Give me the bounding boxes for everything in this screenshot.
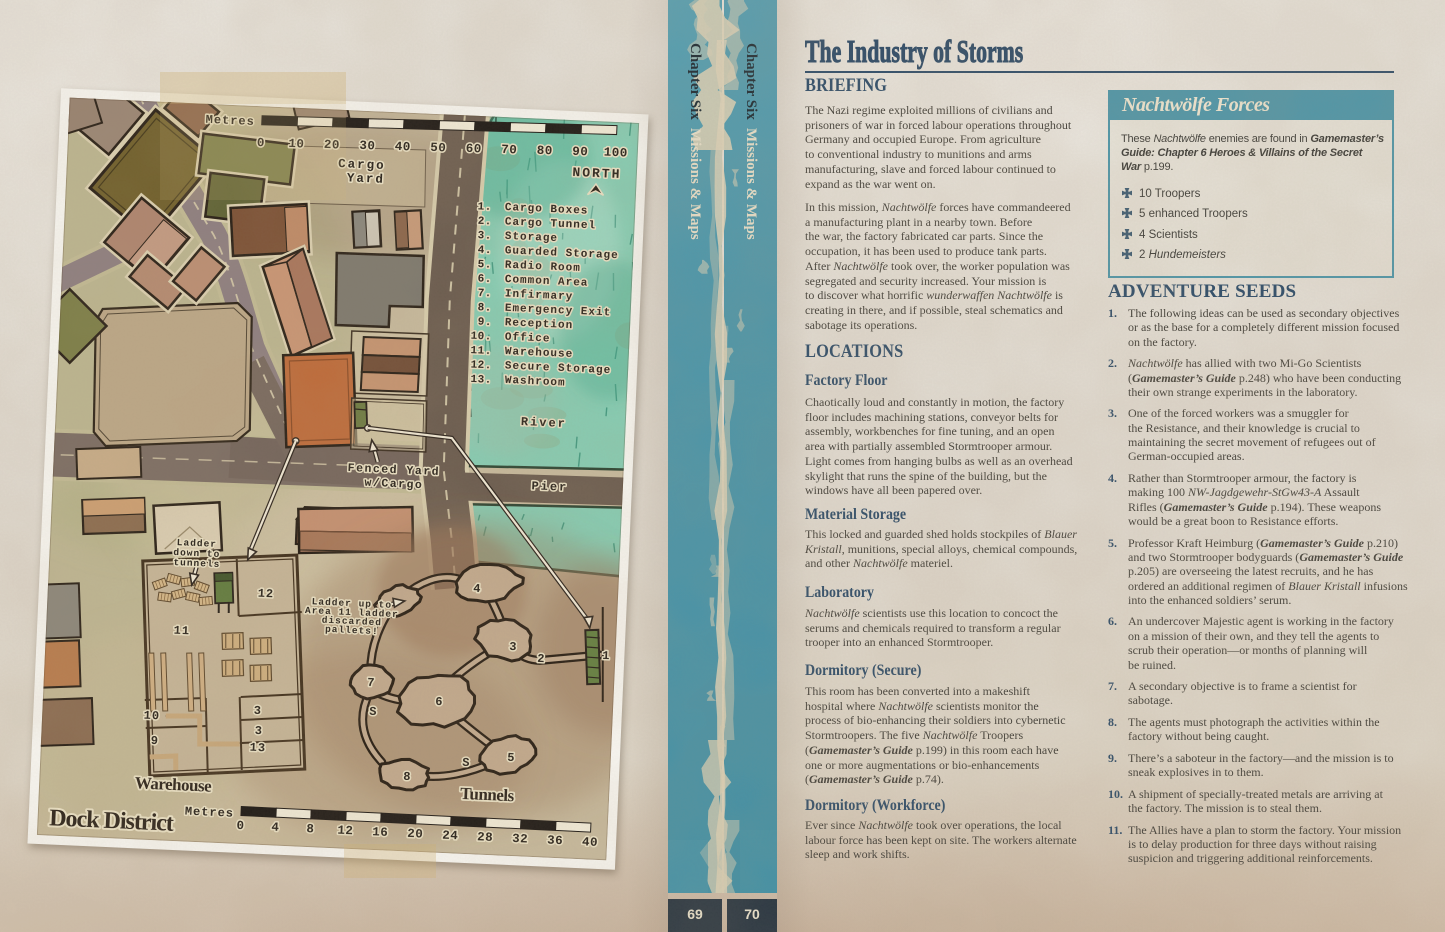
svg-text:40: 40	[395, 140, 412, 155]
svg-text:7.: 7.	[477, 288, 492, 301]
svg-text:28: 28	[477, 830, 494, 845]
svg-text:11.: 11.	[470, 345, 492, 358]
svg-text:12: 12	[257, 587, 274, 602]
svg-text:w/Cargo: w/Cargo	[364, 477, 423, 493]
svg-text:24: 24	[442, 829, 459, 844]
svg-text:5.: 5.	[477, 259, 492, 272]
svg-text:S: S	[369, 705, 377, 719]
svg-text:2.: 2.	[477, 216, 492, 229]
svg-text:9.: 9.	[477, 317, 492, 330]
svg-text:1: 1	[602, 649, 610, 663]
svg-text:3: 3	[253, 704, 262, 718]
svg-text:Office: Office	[505, 332, 551, 346]
svg-text:Yard: Yard	[347, 171, 386, 187]
svg-text:50: 50	[430, 141, 447, 156]
svg-text:10.: 10.	[470, 331, 492, 344]
svg-text:8.: 8.	[477, 302, 492, 315]
svg-text:8: 8	[403, 770, 411, 784]
svg-text:40: 40	[582, 835, 599, 850]
svg-text:10: 10	[143, 709, 160, 724]
svg-text:Pier: Pier	[531, 479, 568, 495]
svg-text:100: 100	[603, 146, 628, 161]
svg-text:8: 8	[306, 822, 315, 836]
svg-text:4: 4	[473, 582, 481, 596]
svg-text:32: 32	[512, 832, 529, 847]
svg-text:6.: 6.	[477, 273, 492, 286]
svg-text:S: S	[462, 756, 470, 770]
svg-text:6: 6	[435, 695, 443, 709]
svg-text:20: 20	[407, 827, 424, 842]
svg-text:9: 9	[150, 734, 159, 748]
svg-text:3.: 3.	[477, 230, 492, 243]
svg-text:2: 2	[537, 652, 545, 666]
svg-text:1.: 1.	[477, 201, 492, 214]
svg-text:13.: 13.	[470, 374, 492, 387]
svg-text:3: 3	[254, 724, 263, 738]
svg-text:River: River	[521, 415, 568, 431]
svg-text:90: 90	[572, 145, 589, 160]
svg-text:5: 5	[507, 751, 515, 765]
svg-text:tunnels: tunnels	[173, 557, 220, 570]
svg-text:Storage: Storage	[505, 231, 559, 245]
svg-text:3: 3	[509, 640, 517, 654]
svg-text:pallets!: pallets!	[325, 624, 379, 637]
svg-text:Dock District: Dock District	[49, 805, 175, 837]
svg-text:11: 11	[173, 624, 190, 639]
svg-text:13: 13	[249, 741, 266, 756]
svg-text:80: 80	[536, 144, 553, 159]
svg-text:Tunnels: Tunnels	[460, 784, 515, 805]
svg-text:16: 16	[372, 825, 389, 840]
svg-text:12: 12	[337, 824, 354, 839]
svg-text:Metres: Metres	[185, 805, 235, 821]
svg-text:7: 7	[367, 676, 375, 690]
svg-text:36: 36	[547, 834, 564, 849]
svg-text:NORTH: NORTH	[572, 165, 622, 182]
svg-text:4.: 4.	[477, 245, 492, 258]
svg-text:12.: 12.	[470, 359, 492, 372]
svg-text:60: 60	[466, 142, 483, 157]
svg-text:0: 0	[236, 819, 245, 833]
svg-text:Warehouse: Warehouse	[134, 773, 212, 795]
svg-text:70: 70	[501, 143, 518, 158]
svg-text:30: 30	[359, 139, 376, 154]
svg-text:4: 4	[271, 820, 280, 834]
